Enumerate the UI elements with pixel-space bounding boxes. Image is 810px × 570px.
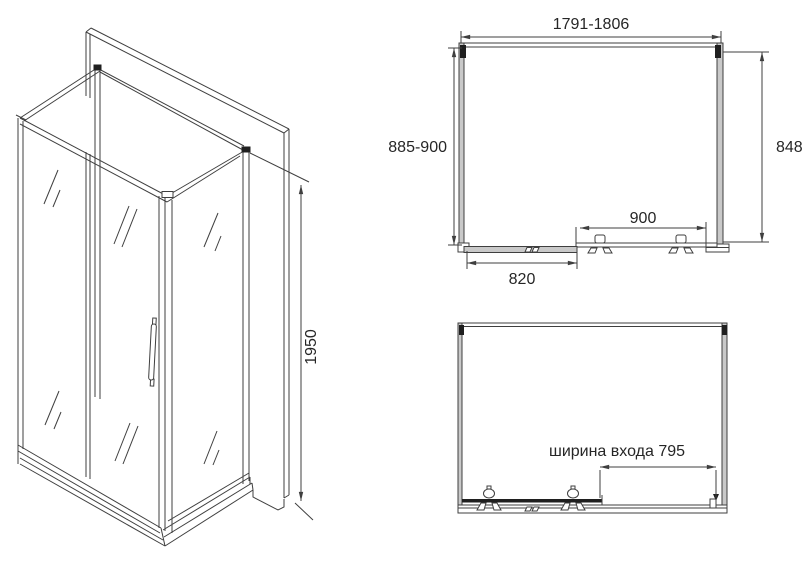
depth-dim-label: 885-900 — [388, 139, 447, 156]
fixed-glass-dim-label: 900 — [630, 210, 657, 227]
height-dimension: 1950 — [250, 153, 320, 520]
open-frame — [458, 323, 727, 513]
back-wall-panel — [86, 28, 289, 498]
plan-right-side-dimension: 848 — [723, 52, 803, 242]
plan-frame — [459, 43, 729, 252]
height-dim-label: 1950 — [303, 329, 320, 365]
plan-sliding-door — [458, 243, 577, 253]
front-open-view: ширина входа 795 — [458, 323, 727, 513]
width-dim-label: 1791-1806 — [553, 16, 630, 33]
right-side-dim-label: 848 — [776, 139, 803, 156]
entrance-dim-label: ширина входа 795 — [549, 443, 685, 460]
glass-reflection-marks — [44, 170, 221, 465]
plan-view: 1791-1806 885-900 848 900 820 — [388, 16, 803, 288]
technical-drawing-canvas: 1950 — [0, 0, 810, 570]
door-dim-label: 820 — [509, 271, 536, 288]
plan-width-dimension: 1791-1806 — [461, 16, 721, 43]
isometric-view: 1950 — [16, 28, 320, 546]
shower-enclosure-drawing: 1950 — [0, 0, 810, 570]
door-handle — [148, 318, 157, 386]
plan-fixed-glass — [576, 227, 717, 253]
plan-depth-dimension: 885-900 — [388, 48, 462, 245]
base-tray — [18, 445, 284, 546]
plan-door-dimension: 820 — [467, 251, 577, 288]
